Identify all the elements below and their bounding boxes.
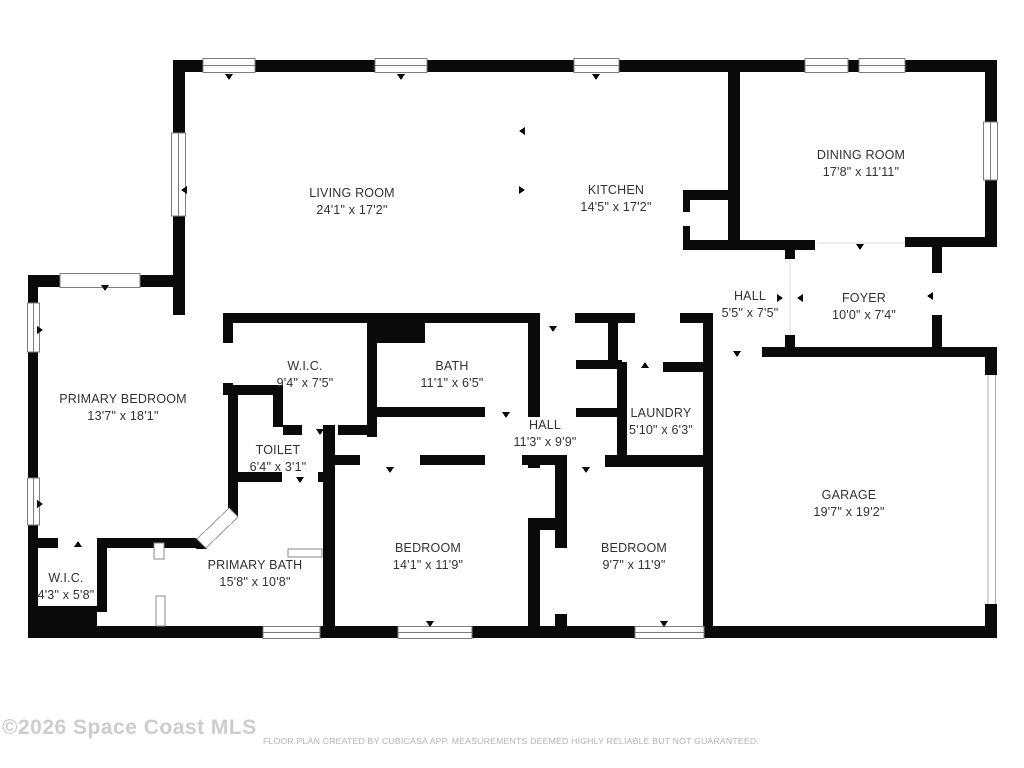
wall-primary-bottom-a xyxy=(28,538,58,548)
tick-bedroom1-door xyxy=(386,467,394,473)
tick-living-interior xyxy=(519,127,525,135)
wall-closet-right-b xyxy=(555,614,567,628)
tick-bedroom2-door xyxy=(582,467,590,473)
tick-wic9-door xyxy=(316,429,324,435)
garage-door xyxy=(988,375,996,604)
wall-wic9-bottom-a xyxy=(283,425,302,435)
wall-kitchen-dining-divider xyxy=(728,60,740,242)
mls-copyright: ©2026 Space Coast MLS xyxy=(2,716,257,740)
room-label-primary-bath: PRIMARY BATH15'8" x 10'8" xyxy=(155,557,355,590)
tick-dining-foyer-opening xyxy=(856,244,864,250)
wall-hall-foyer-a xyxy=(785,247,795,259)
room-label-bath: BATH11'1" x 6'5" xyxy=(352,358,552,391)
wall-livingroom-left-lower xyxy=(173,216,185,315)
wall-garage-top xyxy=(762,347,997,357)
fixture-primarybath-vanity xyxy=(288,549,322,557)
room-label-toilet: TOILET6'4" x 3'1" xyxy=(178,442,378,475)
room-label-primary-bedroom: PRIMARY BEDROOM13'7" x 18'1" xyxy=(23,391,223,424)
floorplan-page: LIVING ROOM24'1" x 17'2" KITCHEN14'5" x … xyxy=(0,0,1024,768)
wall-kitchen-bottom-a xyxy=(575,313,635,323)
tick-window xyxy=(592,74,600,80)
wall-bottom xyxy=(28,626,997,638)
wall-dining-bottom xyxy=(905,237,997,247)
wall-closet-left-b xyxy=(528,518,540,628)
wall-hall-bedrooms-b xyxy=(420,455,485,465)
tick-laundry-door xyxy=(641,362,649,368)
wall-laundry-top xyxy=(663,362,705,372)
wall-kitchen-south xyxy=(683,240,815,250)
room-label-wic-small: W.I.C.4'3" x 5'8" xyxy=(0,570,166,603)
room-label-foyer: FOYER10'0" x 7'4" xyxy=(764,290,964,323)
wall-closet-right-a xyxy=(555,465,567,548)
tick-hall-opening xyxy=(549,326,557,332)
wall-wic9-left-a xyxy=(223,313,233,343)
wall-bath-bottom xyxy=(367,407,485,417)
room-label-bedroom-2: BEDROOM9'7" x 11'9" xyxy=(534,540,734,573)
wall-linen-vertical xyxy=(608,313,618,362)
wall-garage-west xyxy=(703,313,713,637)
tick-window xyxy=(397,74,405,80)
wall-toilet-stub xyxy=(273,395,283,427)
wall-closet-left-a xyxy=(528,455,540,468)
angled-door-opening xyxy=(197,508,238,548)
wall-entry-upper xyxy=(932,247,942,273)
wall-wic-bottom-block xyxy=(28,606,97,630)
tick-toilet-door xyxy=(296,477,304,483)
tick-garage-hall-door xyxy=(733,351,741,357)
room-label-dining-room: DINING ROOM17'8" x 11'11" xyxy=(761,147,961,180)
wall-linen-h1 xyxy=(576,360,622,369)
room-label-kitchen: KITCHEN14'5" x 17'2" xyxy=(516,182,716,215)
wall-wic9-bottom-b xyxy=(338,425,372,435)
wall-hall-foyer-b xyxy=(785,335,795,352)
tick-wic4-door xyxy=(74,541,82,547)
wall-garage-right-upper xyxy=(985,347,997,375)
cubicasa-disclaimer: FLOOR PLAN CREATED BY CUBICASA APP. MEAS… xyxy=(263,736,759,746)
room-label-laundry: LAUNDRY5'10" x 6'3" xyxy=(561,405,761,438)
tick-window xyxy=(225,74,233,80)
room-label-garage: GARAGE19'7" x 19'2" xyxy=(749,487,949,520)
window-primary-top xyxy=(60,274,140,288)
wall-livingroom-left-upper xyxy=(173,60,185,135)
room-label-living-room: LIVING ROOM24'1" x 17'2" xyxy=(252,185,452,218)
wall-primary-bottom-b xyxy=(97,538,196,548)
room-label-bedroom-1: BEDROOM14'1" x 11'9" xyxy=(328,540,528,573)
